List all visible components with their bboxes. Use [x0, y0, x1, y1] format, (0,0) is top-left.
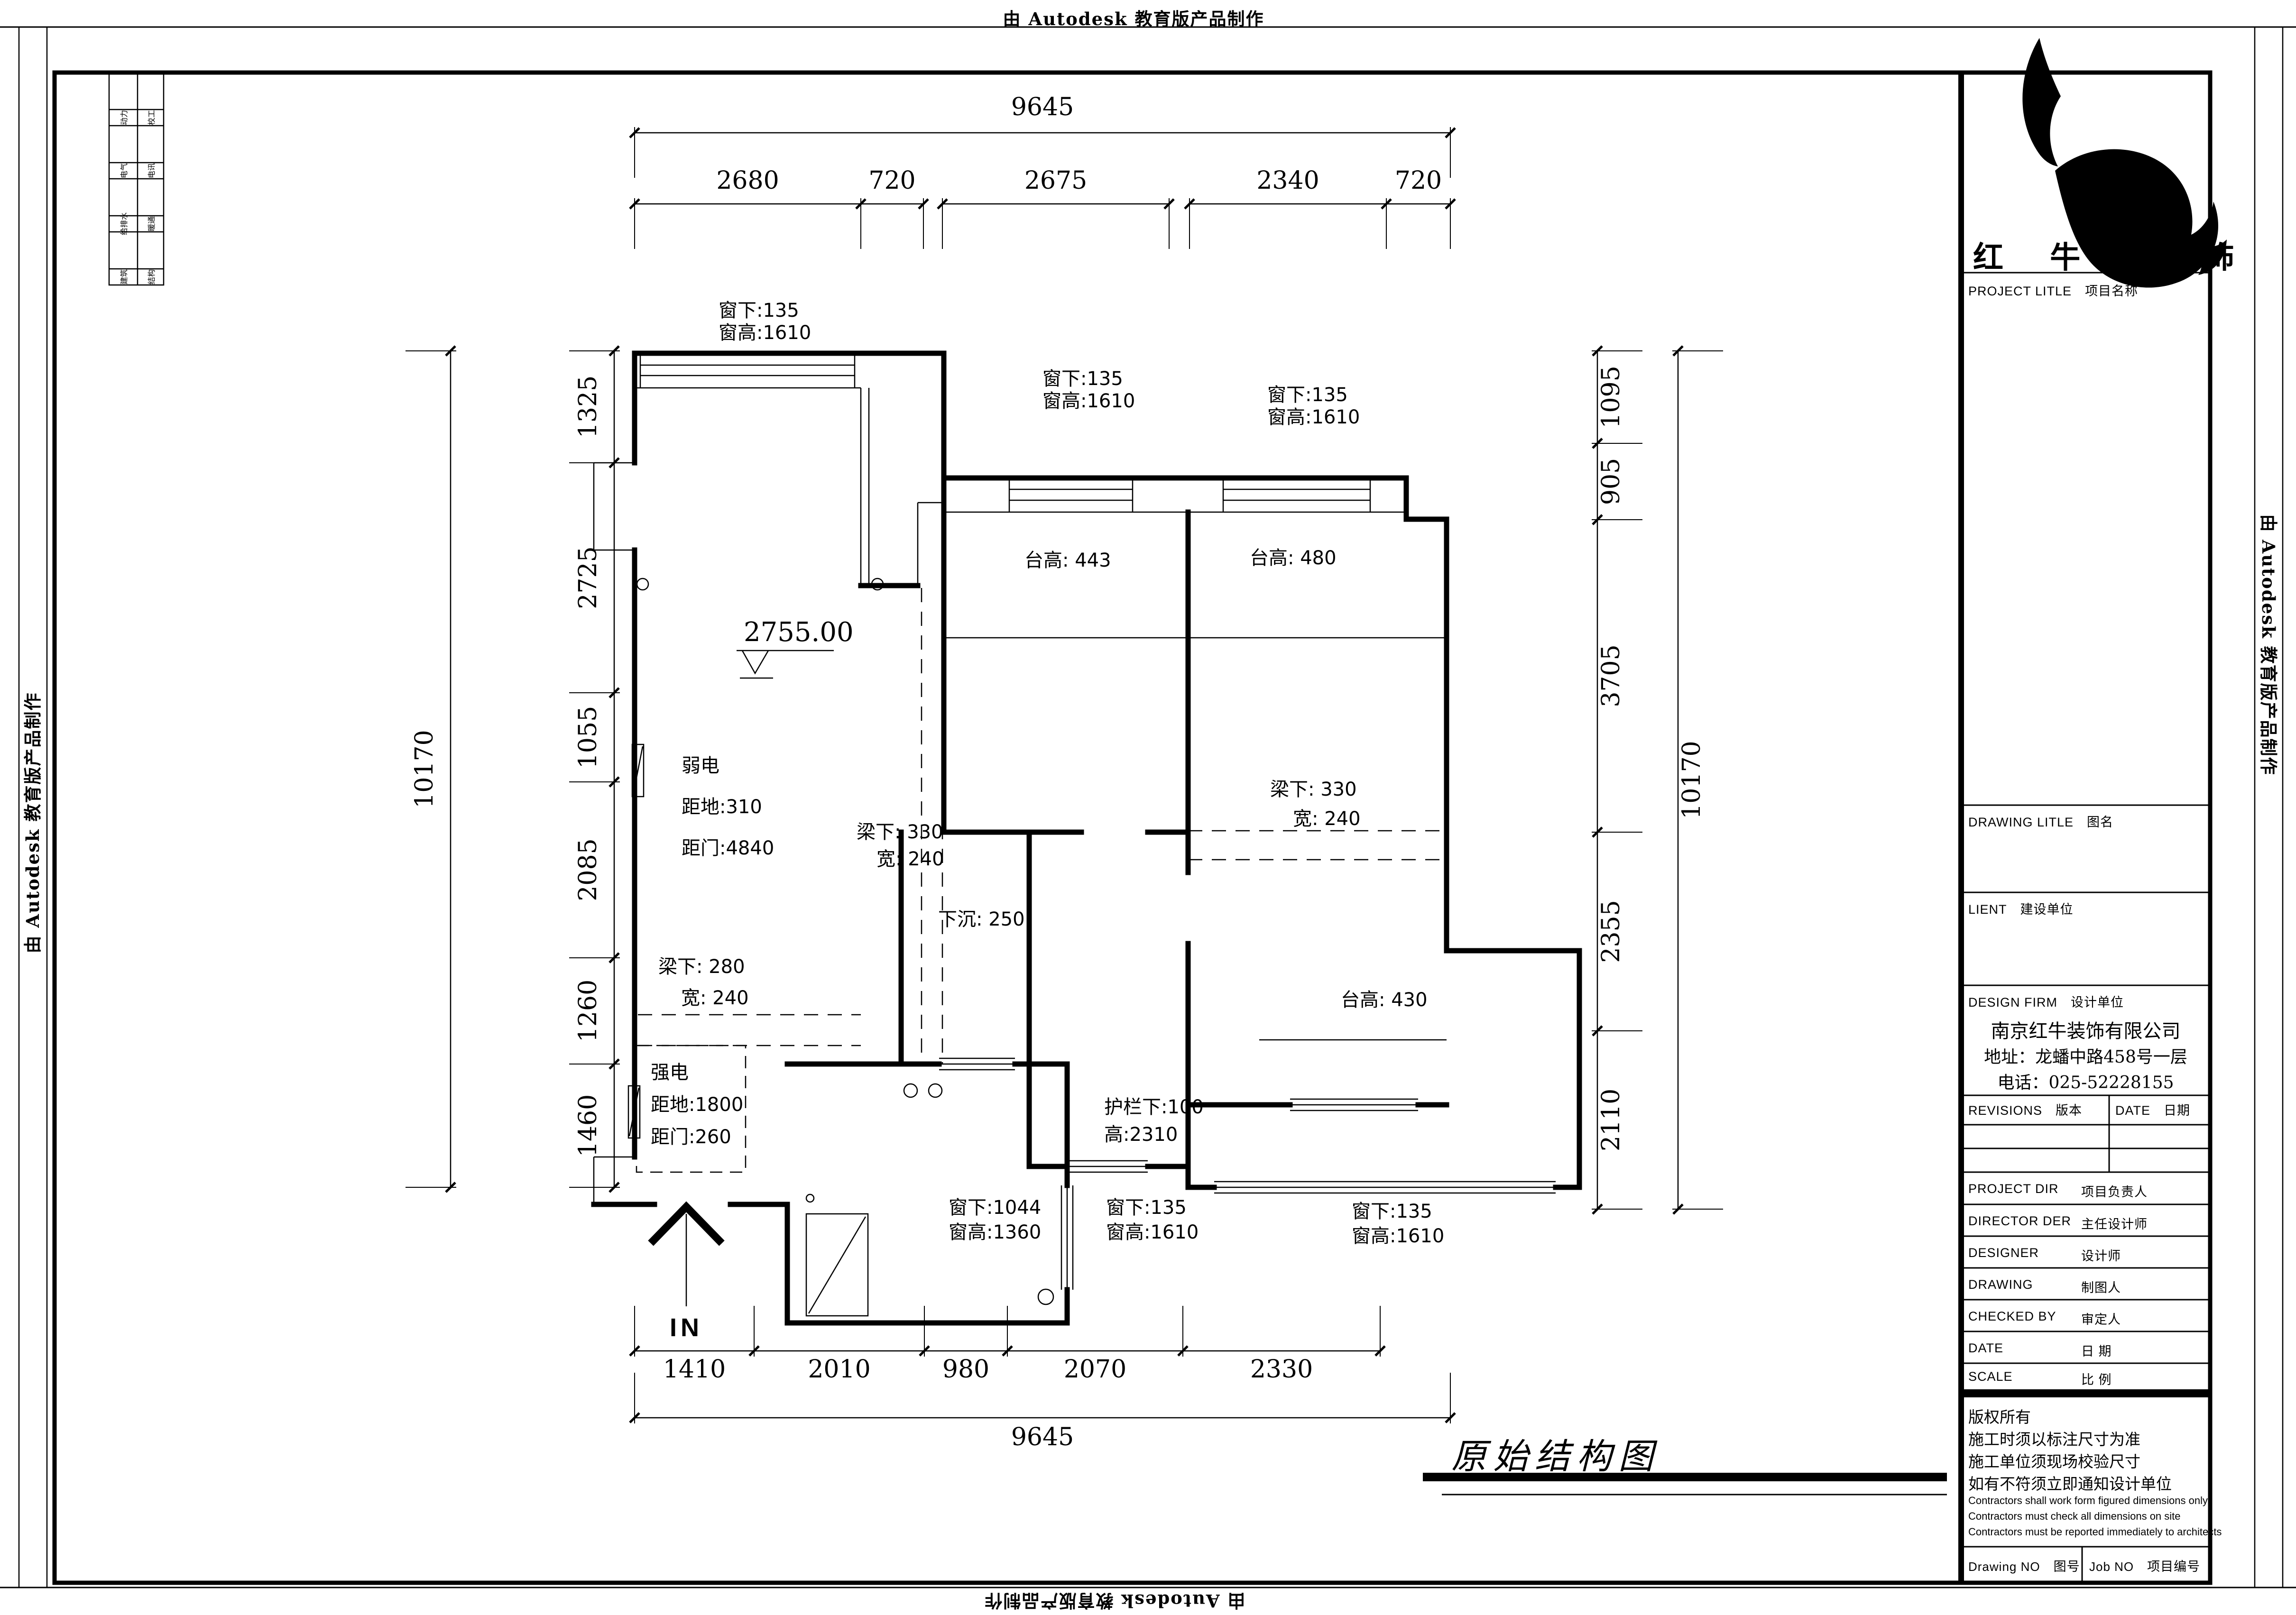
svg-text:1325: 1325: [574, 376, 602, 438]
drawing-no-label-zh: 图号: [2054, 1560, 2080, 1574]
firm-address: 地址：龙蟠中路458号一层: [1961, 1043, 2210, 1068]
discipline-check: 校工: [145, 110, 157, 125]
annotation-strong-current-line1: 距地:1800: [651, 1094, 743, 1116]
company-name: 红 牛 装 饰: [1973, 233, 2201, 277]
role-row-0: PROJECT DIR项目负责人: [1968, 1182, 2059, 1196]
annotation-guardrail-line1: 高:2310: [1104, 1124, 1178, 1146]
svg-text:2085: 2085: [574, 838, 602, 901]
design-firm-label-en: DESIGN FIRM: [1968, 995, 2057, 1009]
client-label-en: LIENT: [1968, 902, 2007, 917]
client-field: LIENT建设单位: [1968, 899, 2074, 918]
role-row-2: DESIGNER设计师: [1968, 1246, 2039, 1260]
annotation-weak-current-line2: 距门:4840: [682, 837, 774, 859]
copyright-note-2: 施工单位须现场校验尺寸: [1968, 1449, 2140, 1472]
svg-text:2110: 2110: [1597, 1089, 1625, 1151]
svg-text:2010: 2010: [808, 1355, 870, 1384]
svg-text:2355: 2355: [1597, 900, 1625, 963]
discipline-power: 动力: [118, 110, 129, 125]
date-col-header: DATE日期: [2115, 1100, 2190, 1119]
title-block-divider-bar: [1961, 1389, 2210, 1397]
revisions-label-zh: 版本: [2056, 1103, 2082, 1118]
role-row-5: DATE日 期: [1968, 1341, 2003, 1356]
annotation-beam-center-line1: 宽: 240: [876, 848, 944, 870]
copyright-note-3: 如有不符须立即通知设计单位: [1968, 1471, 2172, 1494]
door-circles: [637, 578, 1053, 1304]
drawing-title-field: DRAWING LITLE图名: [1968, 812, 2113, 830]
annotation-strong-current-line2: 距门:260: [651, 1126, 731, 1148]
revisions-header: REVISIONS版本: [1968, 1100, 2082, 1119]
design-firm-label-zh: 设计单位: [2071, 995, 2124, 1009]
english-note-2: Contractors must be reported immediately…: [1968, 1526, 2222, 1538]
level-mark-value: 2755.00: [744, 617, 854, 648]
drawing-no-field: Drawing NO图号: [1968, 1556, 2080, 1575]
svg-text:9645: 9645: [1011, 1423, 1074, 1451]
svg-text:720: 720: [868, 166, 915, 195]
annotation-window-living-line0: 窗下:135: [719, 300, 799, 321]
annotation-beam-left-line0: 梁下: 280: [658, 956, 745, 978]
svg-text:720: 720: [1395, 166, 1442, 195]
sheet-frame: [0, 27, 2296, 1587]
annotation-sill-bedroom2-low-line0: 台高: 430: [1341, 989, 1428, 1011]
english-note-0: Contractors shall work form figured dime…: [1968, 1495, 2208, 1507]
role-row-6: SCALE比 例: [1968, 1369, 2013, 1384]
role-row-4: CHECKED BY审定人: [1968, 1309, 2056, 1324]
annotation-window-bath-side-line0: 窗下:135: [1106, 1197, 1187, 1219]
revisions-label-en: REVISIONS: [1968, 1103, 2042, 1118]
annotation-window-bedroom2-line0: 窗下:135: [1267, 384, 1348, 406]
copyright-note-1: 施工时须以标注尺寸为准: [1968, 1427, 2140, 1450]
svg-text:1410: 1410: [663, 1355, 726, 1384]
drawing-title-label-en: DRAWING LITLE: [1968, 815, 2074, 829]
annotation-window-bedroom2-line1: 窗高:1610: [1267, 406, 1360, 428]
client-label-zh: 建设单位: [2020, 902, 2074, 917]
project-title-label-zh: 项目名称: [2085, 284, 2138, 298]
drawing-no-label-en: Drawing NO: [1968, 1560, 2040, 1574]
discipline-plumbing: 给排水: [118, 212, 129, 235]
discipline-electrical: 电气: [118, 163, 129, 178]
project-title-label-en: PROJECT LITLE: [1968, 284, 2072, 298]
annotation-window-bath-side-line1: 窗高:1610: [1106, 1221, 1199, 1243]
annotation-window-bedroom1-line1: 窗高:1610: [1042, 390, 1135, 412]
bottom-banner: 由 Autodesk 教育版产品制作: [984, 1589, 1245, 1615]
copyright-note-0: 版权所有: [1968, 1404, 2031, 1427]
design-firm-field: DESIGN FIRM设计单位: [1968, 992, 2124, 1010]
svg-text:905: 905: [1597, 458, 1625, 505]
cad-sheet: IN 2755.00 96452680720267523407201410201…: [0, 0, 2296, 1607]
annotation-window-balcony-line0: 窗下:135: [1352, 1201, 1432, 1222]
annotation-beam-right-line1: 宽: 240: [1293, 808, 1361, 830]
svg-text:10170: 10170: [1678, 741, 1706, 819]
svg-text:980: 980: [942, 1355, 989, 1384]
level-mark-triangle: [742, 651, 768, 673]
annotation-beam-right-line0: 梁下: 330: [1270, 779, 1357, 800]
annotation-window-bath-line1: 窗高:1360: [949, 1221, 1041, 1243]
job-no-label-en: Job NO: [2089, 1560, 2134, 1574]
discipline-telecom: 电讯: [145, 163, 157, 178]
annotation-weak-current-line0: 弱电: [682, 755, 719, 777]
annotation-sunken-line0: 下沉: 250: [938, 908, 1025, 930]
annotation-sill-bedroom2-line0: 台高: 480: [1250, 547, 1337, 569]
svg-text:10170: 10170: [410, 730, 439, 808]
annotation-window-balcony-line1: 窗高:1610: [1352, 1225, 1444, 1247]
job-no-label-zh: 项目编号: [2147, 1560, 2200, 1574]
annotation-guardrail-line0: 护栏下:100: [1104, 1096, 1204, 1118]
project-title-field: PROJECT LITLE项目名称: [1968, 281, 2138, 299]
date-col-label-en: DATE: [2115, 1103, 2150, 1118]
annotation-strong-current-line0: 强电: [651, 1062, 689, 1083]
role-row-1: DIRECTOR DER主任设计师: [1968, 1214, 2071, 1229]
svg-text:2725: 2725: [574, 546, 602, 609]
svg-text:2680: 2680: [716, 166, 779, 195]
svg-text:9645: 9645: [1011, 93, 1074, 121]
svg-text:2340: 2340: [1256, 166, 1319, 195]
discipline-hvac: 暖通: [145, 216, 157, 231]
svg-text:1460: 1460: [574, 1094, 602, 1157]
right-banner: 由 Autodesk 教育版产品制作: [2257, 514, 2283, 775]
svg-text:2330: 2330: [1250, 1355, 1313, 1384]
dimension-layer: 9645268072026752340720141020109802070233…: [406, 93, 1723, 1451]
annotation-beam-center-line0: 梁下: 330: [857, 821, 943, 843]
discipline-architecture: 建筑: [118, 269, 129, 284]
discipline-structure: 结构: [145, 269, 157, 284]
entrance-label: IN: [670, 1313, 703, 1342]
english-note-1: Contractors must check all dimensions on…: [1968, 1510, 2181, 1523]
annotation-window-bedroom1-line0: 窗下:135: [1042, 368, 1123, 390]
date-col-label-zh: 日期: [2164, 1103, 2190, 1118]
svg-text:2675: 2675: [1024, 166, 1087, 195]
beams-dashed: [636, 588, 1442, 1172]
role-row-3: DRAWING制图人: [1968, 1277, 2033, 1292]
svg-text:2070: 2070: [1064, 1355, 1126, 1384]
left-banner: 由 Autodesk 教育版产品制作: [18, 692, 44, 953]
svg-text:3705: 3705: [1597, 644, 1625, 707]
discipline-table-grid: [109, 73, 164, 285]
floor-plan-canvas: IN 2755.00 96452680720267523407201410201…: [0, 0, 2296, 1607]
drawing-sheet-title: 原始结构图: [1451, 1428, 1660, 1479]
svg-text:1260: 1260: [574, 980, 602, 1042]
svg-text:1055: 1055: [574, 706, 602, 769]
drawing-title-label-zh: 图名: [2087, 815, 2113, 829]
firm-name: 南京红牛装饰有限公司: [1961, 1016, 2210, 1043]
annotation-weak-current-line1: 距地:310: [682, 796, 762, 818]
svg-text:1095: 1095: [1597, 366, 1625, 428]
annotation-window-living-line1: 窗高:1610: [719, 322, 811, 344]
job-no-field: Job NO项目编号: [2089, 1556, 2200, 1575]
firm-phone: 电话：025-52228155: [1961, 1069, 2210, 1093]
annotation-sill-bedroom1-line0: 台高: 443: [1024, 550, 1111, 571]
top-banner: 由 Autodesk 教育版产品制作: [1003, 5, 1264, 30]
annotation-beam-left-line1: 宽: 240: [681, 987, 749, 1009]
annotation-window-bath-line0: 窗下:1044: [949, 1197, 1041, 1219]
